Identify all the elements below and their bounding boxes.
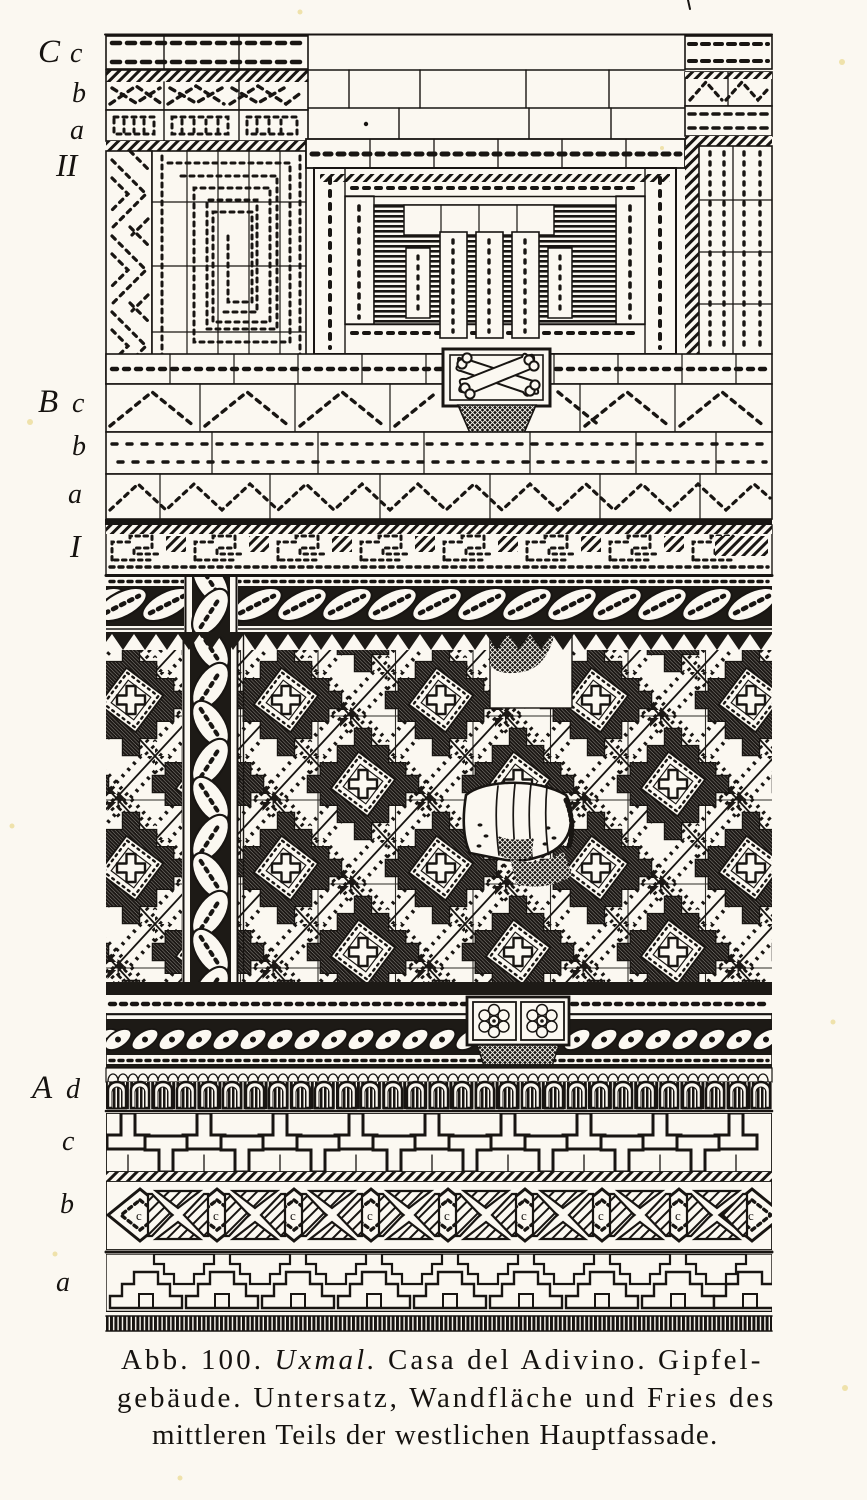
svg-text:b: b [72,431,86,462]
svg-text:b: b [60,1189,74,1220]
svg-text:a: a [56,1267,70,1298]
svg-text:c: c [72,388,85,419]
svg-text:d: d [66,1074,81,1105]
svg-text:A: A [30,1070,53,1106]
svg-text:b: b [72,78,86,109]
svg-text:B: B [38,384,58,420]
svg-text:c: c [70,38,83,69]
svg-text:gebäude. Untersatz, Wandfläc: gebäude. Untersatz, Wandfläche und Fries… [117,1382,776,1414]
svg-text:a: a [68,479,82,510]
svg-text:Abb. 100. Uxmal. Casa del Ad: Abb. 100. Uxmal. Casa del Adivino. Gipfe… [121,1344,763,1376]
svg-text:C: C [38,34,61,70]
svg-text:I: I [69,528,82,564]
svg-text:mittleren Teils der westlic: mittleren Teils der westlichen Hauptfass… [152,1419,718,1451]
svg-text:c: c [62,1126,75,1157]
svg-text:II: II [55,147,79,183]
svg-text:a: a [70,115,84,146]
